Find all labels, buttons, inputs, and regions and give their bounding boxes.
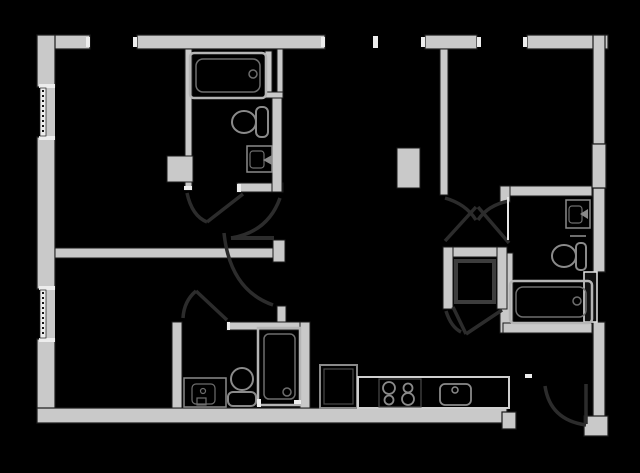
jamb-cap — [237, 184, 241, 192]
stove-burner — [402, 393, 414, 405]
wall-bottom — [37, 408, 507, 423]
wall-tub1-conn — [265, 92, 283, 98]
window-left1-sill — [46, 88, 55, 136]
toilet1-bowl — [232, 111, 256, 133]
door-bath1-panel — [207, 194, 243, 222]
window-tick — [321, 37, 325, 47]
floorplan-svg — [0, 0, 640, 473]
toilet2-tank — [576, 243, 586, 270]
door-heater-leaf-r — [466, 310, 502, 334]
window-right1 — [592, 144, 606, 188]
wall-bath1-right-upper — [277, 49, 283, 92]
wall-mid-vertical — [440, 49, 448, 195]
floorplan — [0, 0, 640, 473]
window-tick — [86, 37, 90, 47]
door-bath3-panel — [196, 291, 227, 320]
wall-bath1-right-lower — [272, 98, 282, 192]
kitchen-counter — [358, 377, 509, 408]
bathtub2-drain — [573, 297, 581, 305]
sink2-basin — [569, 206, 582, 223]
wall-bath3-right — [300, 322, 310, 408]
bathtub1-inner — [196, 59, 260, 92]
stove-burner — [383, 382, 395, 394]
wall-corridor — [55, 248, 277, 258]
window-left2-sill — [46, 290, 55, 338]
wall-top-2 — [137, 35, 325, 49]
wall-bath3-left — [172, 322, 182, 408]
wall-bed1-stub — [277, 306, 286, 324]
window-tick — [133, 37, 137, 47]
window-tick — [523, 37, 527, 47]
wall-closet-left — [443, 247, 453, 309]
toilet3-tank — [228, 392, 256, 406]
kitchen-faucet — [452, 387, 458, 393]
wall-right-1 — [593, 35, 605, 144]
water-heater — [456, 261, 494, 302]
jamb-cap — [227, 322, 230, 330]
door-hall-arc — [231, 198, 280, 238]
toilet3-bowl — [231, 368, 253, 390]
jamb-cap — [184, 186, 192, 190]
wall-top-3 — [425, 35, 477, 49]
window-tick — [477, 37, 481, 47]
fridge-outer — [320, 365, 357, 408]
wall-bottom-jamb — [502, 412, 516, 429]
shower-jamb — [294, 400, 301, 404]
window-left1-cap-top — [39, 84, 55, 88]
column-living — [167, 156, 193, 182]
wall-bath2-top — [503, 186, 592, 196]
door-bath3-arc — [183, 291, 196, 318]
wall-left-2 — [37, 137, 55, 289]
shower-drain — [283, 388, 291, 396]
toilet1-tank — [256, 107, 268, 137]
wall-closet-right — [497, 247, 507, 309]
sink3-knob — [201, 389, 206, 394]
stove-burner — [385, 396, 394, 405]
sink1-basin — [250, 151, 264, 168]
wall-right-3 — [593, 322, 605, 417]
toilet2-bowl — [552, 245, 576, 267]
bathtub1-drain — [249, 70, 257, 78]
window-mullion — [373, 36, 378, 48]
door-closet2-leaf-r — [478, 207, 509, 243]
wall-left-1 — [37, 35, 55, 87]
stove-burner — [404, 384, 413, 393]
column-kitchen — [397, 148, 420, 188]
window-left2-cap-top — [39, 286, 55, 290]
window-left2-cap-bot — [39, 338, 55, 342]
fridge-inner — [324, 369, 353, 404]
window-left1-cap-bot — [39, 136, 55, 140]
shower-jamb — [257, 399, 261, 407]
window-tick — [421, 37, 425, 47]
wall-right-2 — [593, 188, 605, 272]
door-bath1-arc — [187, 193, 207, 222]
jamb-cap — [525, 374, 532, 378]
sink2-faucet — [580, 209, 588, 219]
wall-corridor-cap — [273, 240, 285, 262]
door-bed1-arc — [224, 233, 273, 305]
wall-bath2-bottom — [503, 323, 592, 333]
bathtub2-inner — [516, 287, 586, 317]
door-entry-arc — [545, 386, 586, 425]
door-closet2-leaf-l — [445, 207, 476, 241]
door-closet2-arc-l — [445, 198, 476, 220]
